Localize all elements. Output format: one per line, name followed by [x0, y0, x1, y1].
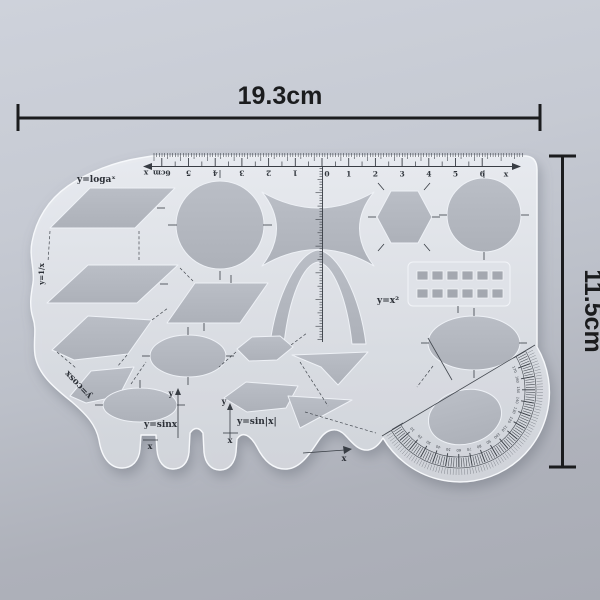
formula-reciprocal: y=1/x — [37, 262, 46, 285]
grid-square-hole — [447, 289, 458, 298]
printed-number: 2 — [266, 169, 271, 178]
printed-number: 6 — [480, 170, 485, 179]
bottom-x-label: x — [342, 453, 347, 463]
sinx-y-label: y — [168, 388, 174, 398]
sinabs-y-label: y — [221, 396, 227, 406]
height-dimension-top-cap — [549, 155, 576, 158]
grid-square-hole — [462, 271, 473, 280]
width-dimension-left-cap — [17, 104, 20, 131]
printed-number: x — [143, 169, 148, 178]
sinabs-x-label: x — [228, 435, 233, 445]
grid-square-hole — [447, 271, 458, 280]
printed-number: 1 — [346, 170, 351, 179]
sinx-x-label: x — [148, 441, 153, 451]
grid-square-hole — [462, 289, 473, 298]
grid-square-hole — [492, 289, 503, 298]
printed-number: x — [504, 170, 509, 179]
width-dimension-right-cap — [539, 104, 542, 131]
formula-sin-abs: y=sin|x| — [236, 417, 277, 427]
printed-number: 150 — [516, 386, 520, 394]
ellipse-cutout-center — [150, 335, 226, 377]
printed-number: 2 — [373, 170, 378, 179]
ellipse-cutout-bottom-left — [103, 388, 177, 422]
circle-cutout-top-right — [447, 178, 521, 252]
printed-number: 60 — [456, 448, 461, 452]
grid-square-hole — [477, 289, 488, 298]
printed-number: 4 — [426, 170, 431, 179]
printed-number: 5 — [186, 169, 191, 178]
height-dimension-bottom-cap — [549, 466, 576, 469]
printed-number: 3 — [399, 170, 404, 179]
formula-log: y=logaˣ — [76, 175, 116, 185]
printed-number: 3 — [239, 169, 244, 178]
printed-number: 0 — [324, 170, 329, 179]
grid-square-hole — [432, 271, 443, 280]
grid-square-hole — [417, 289, 428, 298]
height-dimension-label: 11.5cm — [579, 269, 600, 352]
grid-square-hole — [417, 271, 428, 280]
formula-square: y=x² — [376, 296, 399, 306]
height-dimension: 11.5cm — [549, 155, 600, 469]
product-photo: 19.3cm 11.5cm 6cm543210123456xx — [0, 0, 600, 600]
printed-number: 5 — [453, 170, 458, 179]
width-dimension-label: 19.3cm — [238, 82, 323, 110]
grid-square-hole — [432, 289, 443, 298]
width-dimension-line — [18, 117, 540, 120]
height-dimension-line — [561, 156, 564, 467]
printed-number: 1 — [293, 169, 298, 178]
printed-number: 6cm — [153, 169, 171, 178]
width-dimension: 19.3cm — [17, 82, 542, 131]
printed-number: 4 — [213, 169, 218, 178]
circle-cutout-large — [176, 181, 264, 269]
formula-sin: y=sinx — [143, 420, 178, 430]
square-grid-window — [408, 262, 510, 306]
grid-square-hole — [477, 271, 488, 280]
grid-square-hole — [492, 271, 503, 280]
